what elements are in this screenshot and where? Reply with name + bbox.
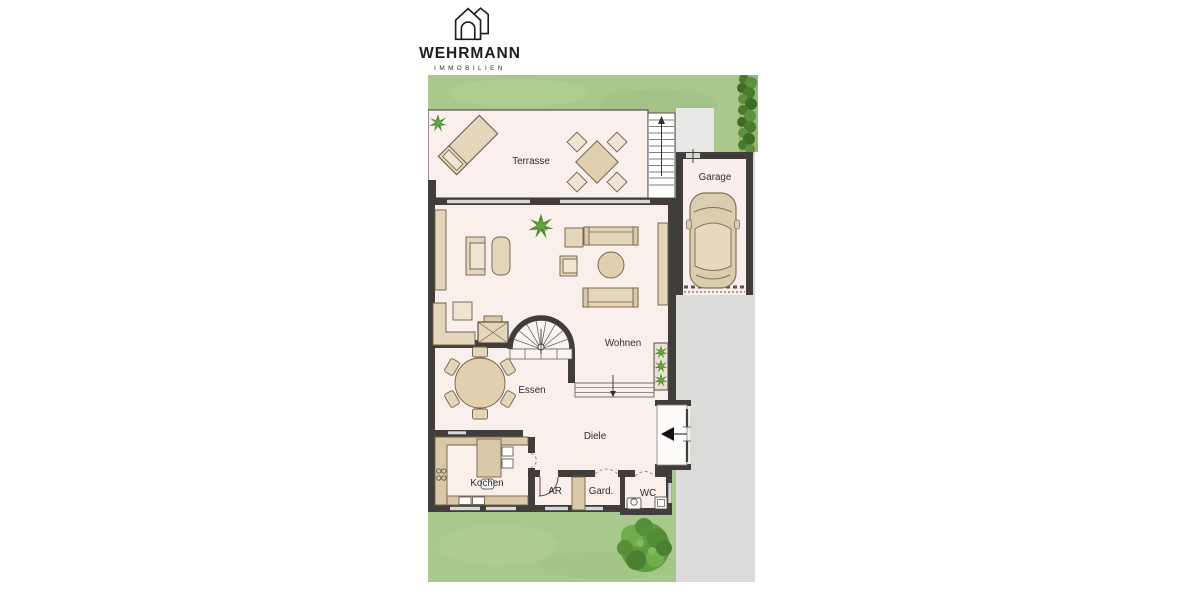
spiral-staircase-icon — [510, 318, 572, 359]
kitchen-island — [477, 439, 501, 477]
small-chair-icon — [560, 256, 577, 276]
room-label-essen: Essen — [518, 385, 545, 396]
room-label-kochen: Kochen — [470, 478, 503, 489]
sideboard-right — [658, 223, 668, 305]
room-label-garderobe: Gard. — [589, 486, 614, 497]
garage-room — [676, 149, 753, 295]
logo: WEHRMANN IMMOBILIEN — [405, 3, 535, 72]
wc-sink-icon — [655, 497, 667, 509]
wardrobe-icon — [572, 477, 585, 510]
floorplan-svg: Terrasse Garage Wohnen Essen Diele Koche… — [428, 75, 758, 582]
floorplan-page: WEHRMANN IMMOBILIEN — [0, 0, 1200, 600]
planter-icon — [654, 343, 668, 390]
armchair-icon — [466, 237, 485, 275]
side-table-icon — [565, 228, 583, 247]
island-chair-1 — [502, 447, 513, 456]
room-label-wohnen: Wohnen — [605, 338, 641, 349]
room-label-diele: Diele — [584, 431, 607, 442]
outdoor-stairs-icon — [648, 113, 675, 198]
sink-icon — [459, 497, 471, 505]
room-label-garage: Garage — [699, 172, 732, 183]
sideboard-left — [435, 210, 446, 290]
room-label-ar: AR — [548, 486, 562, 497]
lounge-chair-icon — [492, 237, 510, 275]
logo-house-icon — [447, 3, 493, 43]
car-icon — [687, 193, 740, 288]
logo-subtitle: IMMOBILIEN — [405, 65, 535, 72]
coffee-table-icon — [598, 252, 624, 278]
room-label-terrasse: Terrasse — [512, 156, 550, 167]
entrance — [657, 405, 691, 465]
terrace-dining-set-icon — [567, 132, 627, 192]
room-label-wc: WC — [640, 488, 656, 499]
sofa-bottom-icon — [583, 288, 638, 307]
sofa-top-icon — [584, 227, 638, 245]
island-chair-2 — [502, 459, 513, 468]
toilet-icon — [627, 498, 641, 509]
hedge-icon — [737, 75, 758, 154]
logo-brand: WEHRMANN — [405, 45, 535, 63]
